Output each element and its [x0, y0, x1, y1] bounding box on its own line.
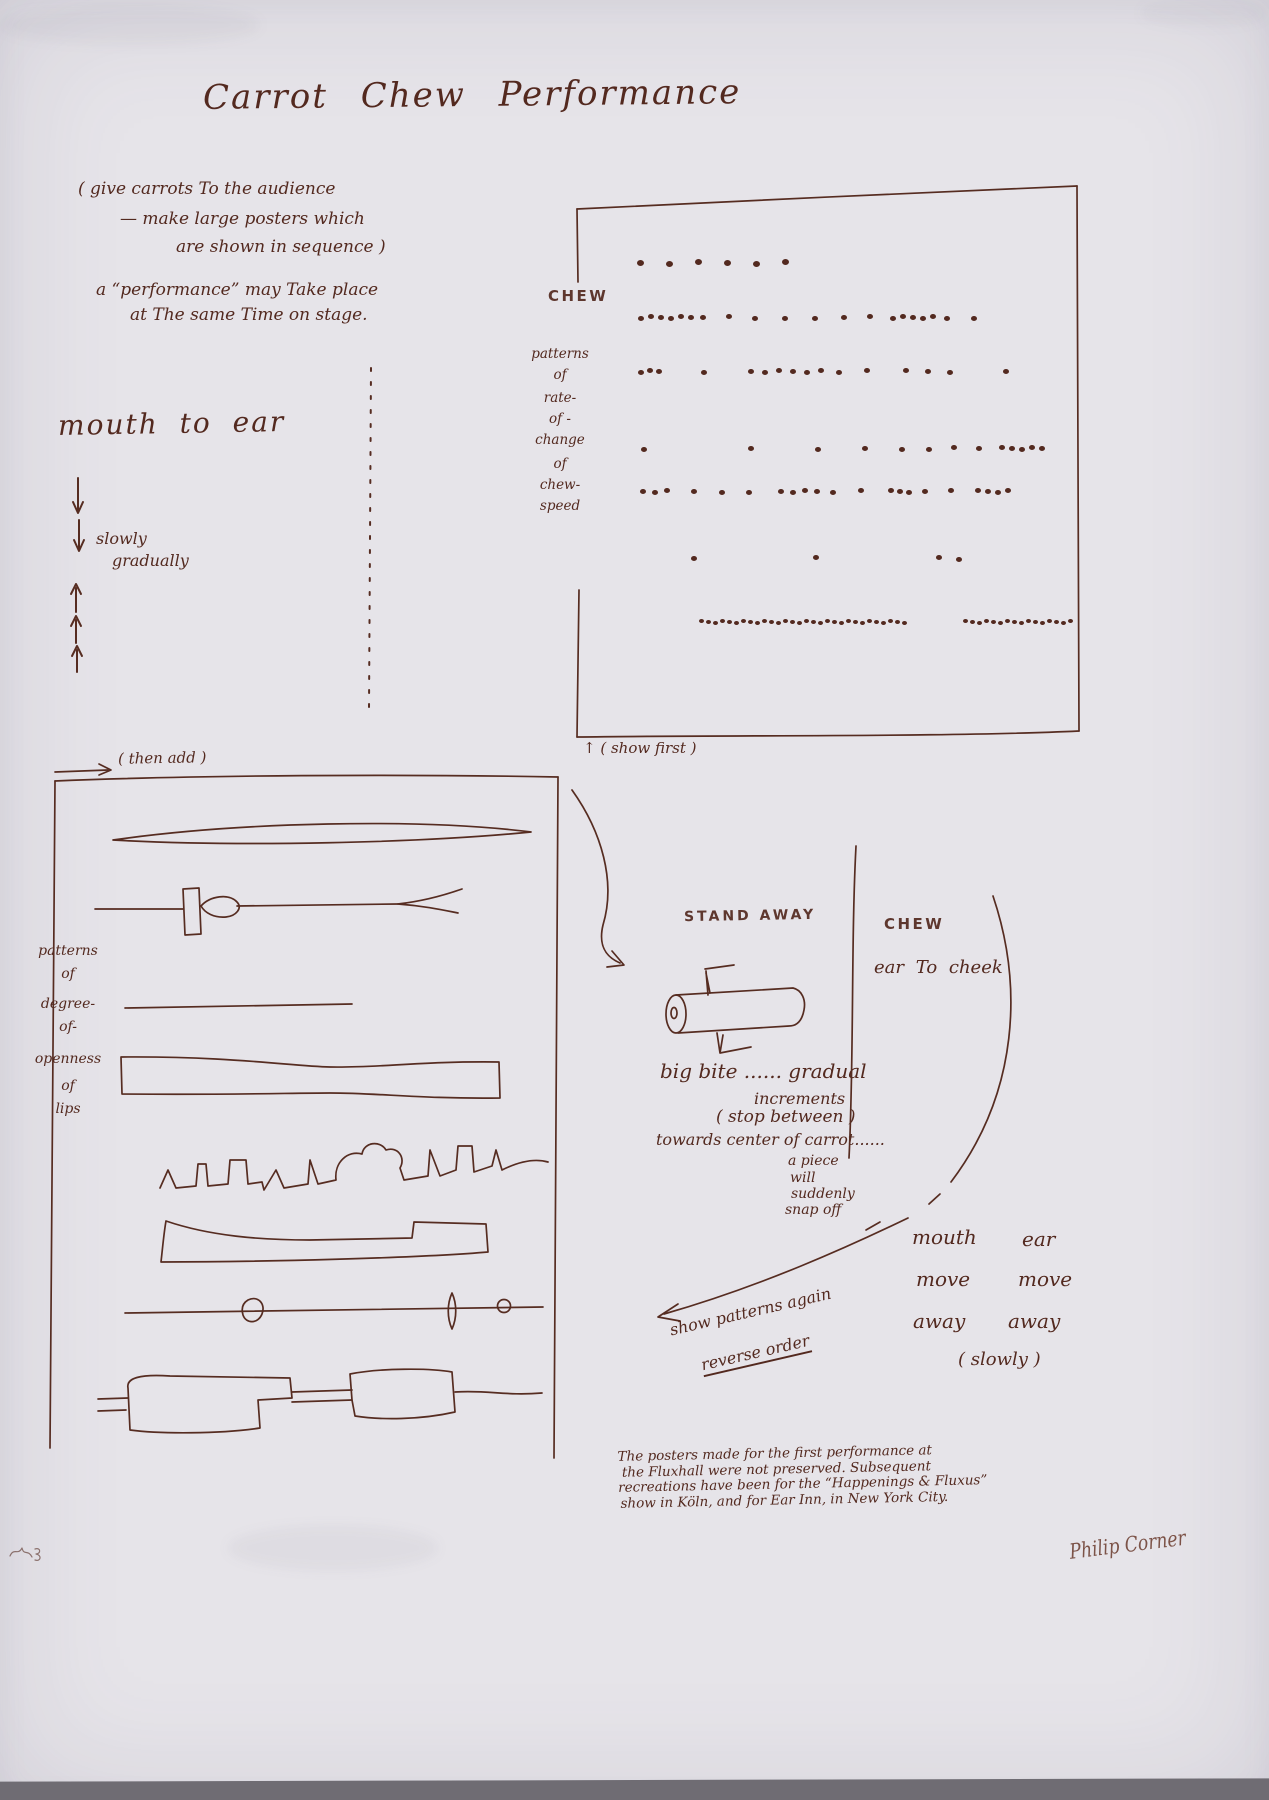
a-piece-line: a piece — [788, 1153, 839, 1169]
lip-pattern-8 — [98, 1369, 542, 1433]
chew-dot — [888, 488, 894, 493]
ghost-smudge — [228, 1526, 438, 1570]
chew-dot — [971, 316, 977, 321]
chew-dot — [648, 314, 654, 319]
curved-arrow-to-carrot — [572, 790, 624, 967]
show-first-label: ↑ ( show first ) — [583, 740, 696, 757]
chew-dot — [867, 619, 872, 623]
stand-away-label: STAND AWAY — [684, 907, 817, 925]
score-box-outline — [577, 186, 1079, 737]
show-patterns-again-label: show patterns again — [668, 1285, 833, 1340]
ending-move-2: move — [1018, 1268, 1072, 1291]
lip-pattern-5 — [160, 1144, 548, 1190]
chew-dot — [746, 490, 752, 495]
chew-dot — [899, 447, 905, 452]
chew-dot — [790, 490, 796, 495]
lip-pattern-2 — [95, 888, 462, 935]
then-add-label: ( then add ) — [118, 749, 207, 768]
chew-dot — [741, 619, 746, 623]
chew-dot — [804, 619, 809, 623]
lips-box-outline — [50, 775, 558, 1458]
lip-pattern-6 — [161, 1221, 488, 1262]
chew-dot — [895, 620, 900, 624]
ending-mouth: mouth — [912, 1226, 977, 1249]
chew-dot — [1019, 447, 1025, 452]
big-bite-line: big bite ...... gradual — [660, 1060, 867, 1083]
chew-dot — [818, 621, 823, 625]
slowly-label: slowly — [96, 530, 147, 548]
chew-dot — [903, 368, 909, 373]
chew-dot — [1039, 446, 1045, 451]
chew-dot — [762, 619, 767, 623]
reverse-order-label: reverse order — [699, 1332, 811, 1375]
chew-dot — [812, 316, 818, 321]
chew-dot — [797, 621, 802, 625]
chew-dot — [926, 447, 932, 452]
bottom-bite-mark — [717, 1033, 751, 1053]
chew-dot — [948, 488, 954, 493]
chew-dot — [860, 621, 865, 625]
gradually-label: gradually — [112, 552, 189, 570]
openness-of-lips-label: patterns of degree- of- openness of lips — [18, 940, 118, 1121]
intro-line-2: — make large posters which — [120, 210, 365, 230]
chew-dot — [963, 619, 968, 623]
chew-dot — [790, 620, 795, 624]
chew-dot — [906, 490, 912, 495]
ghost-smudge — [0, 6, 260, 44]
chew-dot — [804, 370, 810, 375]
chew-dot — [944, 316, 950, 321]
chew-dot — [1047, 619, 1052, 623]
lip-pattern-3 — [125, 1004, 352, 1008]
chew-dot — [930, 314, 936, 319]
chew-dot — [890, 316, 896, 321]
chew-dot — [902, 621, 907, 625]
chew-dot — [1019, 621, 1024, 625]
chew-dot — [720, 619, 725, 623]
intro-line-5: at The same Time on stage. — [130, 306, 368, 326]
lip-pattern-4 — [121, 1057, 500, 1098]
chew-dot — [1003, 369, 1009, 374]
chew-dot — [668, 316, 674, 321]
towards-center-line: towards center of carrot...... — [656, 1131, 885, 1149]
ending-ear: ear — [1022, 1228, 1055, 1251]
chew-dot — [706, 620, 711, 624]
chew-dot — [1040, 621, 1045, 625]
page-title: Carrot Chew Performance — [203, 73, 742, 118]
chew-dot — [700, 315, 706, 320]
chew-dot — [782, 316, 788, 321]
ending-away-2: away — [1008, 1310, 1060, 1333]
chew-dot — [647, 368, 653, 373]
chew-dot — [813, 555, 819, 560]
will-line: will — [790, 1170, 815, 1186]
chew-dot — [853, 620, 858, 624]
chew-dot — [936, 555, 942, 560]
dotted-divider-line — [369, 368, 371, 708]
chew-dot — [802, 488, 808, 493]
chew-dot — [727, 620, 732, 624]
chew-dot — [1005, 488, 1011, 493]
chew-dot — [888, 619, 893, 623]
chew-dot — [1068, 619, 1073, 623]
carrot-drawing — [666, 965, 805, 1053]
ending-away-1: away — [913, 1310, 965, 1333]
chew-dot — [1012, 620, 1017, 624]
chew-dot — [790, 369, 796, 374]
chew-dot — [830, 490, 836, 495]
chew-dot — [910, 315, 916, 320]
chew-dot — [782, 259, 789, 265]
chew-dot — [975, 488, 981, 493]
chew-dot — [984, 619, 989, 623]
ghost-smudge — [1140, 0, 1268, 26]
chew-dot — [726, 314, 732, 319]
chew-dot — [778, 489, 784, 494]
chew-dot — [748, 620, 753, 624]
chew-dot — [699, 619, 704, 623]
chew-dot — [841, 315, 847, 320]
lip-pattern-1 — [113, 824, 531, 844]
then-add-arrow — [55, 764, 111, 775]
intro-line-1: ( give carrots To the audience — [78, 180, 335, 200]
chew-dot — [862, 446, 868, 451]
chew-dot — [815, 447, 821, 452]
chew-dot — [691, 489, 697, 494]
snap-off-line: snap off — [785, 1202, 841, 1218]
chew-dot — [755, 621, 760, 625]
chew-dot — [748, 369, 754, 374]
chew-dot — [638, 316, 644, 321]
chew-dot — [991, 620, 996, 624]
chew-dot — [977, 621, 982, 625]
chew-dot — [1061, 621, 1066, 625]
chew-dot — [836, 370, 842, 375]
chew-dot — [995, 490, 1001, 495]
chew-dot — [825, 619, 830, 623]
chew-dot — [1009, 446, 1015, 451]
ear-to-cheek-label: ear To cheek — [874, 958, 1003, 979]
stop-between-line: ( stop between ) — [716, 1108, 856, 1128]
chew-dot — [998, 621, 1003, 625]
chew-dot — [734, 621, 739, 625]
chew-dot — [762, 370, 768, 375]
suddenly-line: suddenly — [791, 1186, 855, 1202]
chew-dot — [814, 489, 820, 494]
chew-dot — [769, 620, 774, 624]
chew-dot — [656, 369, 662, 374]
chew-dot — [999, 445, 1005, 450]
chew-dot — [701, 370, 707, 375]
chew-dot — [713, 621, 718, 625]
chew-dot — [658, 315, 664, 320]
chew-dot — [858, 488, 864, 493]
chew-dot — [776, 368, 782, 373]
top-bite-mark — [705, 965, 734, 995]
chew-dot — [719, 490, 725, 495]
chew-dot — [976, 446, 982, 451]
chew-dot — [818, 368, 824, 373]
artist-signature: Philip Corner — [1068, 1526, 1187, 1564]
chew-dot — [688, 315, 694, 320]
chew-dot — [900, 314, 906, 319]
chew-dot — [881, 621, 886, 625]
up-arrows — [71, 584, 82, 672]
chew-dot — [678, 314, 684, 319]
footnote: The posters made for the first performan… — [617, 1442, 987, 1512]
chew-dot — [640, 489, 646, 494]
chew-dot — [776, 621, 781, 625]
chew-dot — [1005, 619, 1010, 623]
lip-pattern-7 — [125, 1293, 543, 1329]
chew-dot — [864, 368, 870, 373]
chew-dot — [666, 261, 673, 267]
chew-dot — [752, 316, 758, 321]
ending-move-1: move — [916, 1268, 970, 1291]
chew-dot — [1026, 619, 1031, 623]
chew-dot — [951, 445, 957, 450]
chew-dot — [641, 447, 647, 452]
chew-dot — [1029, 445, 1035, 450]
chew-dot — [846, 619, 851, 623]
paper-bottom-edge — [0, 1778, 1269, 1800]
mouth-to-ear-heading: mouth to ear — [58, 406, 286, 442]
chew-dot — [753, 261, 760, 267]
intro-line-3: are shown in sequence ) — [176, 238, 386, 258]
chew-dot — [832, 620, 837, 624]
chew-label-2: CHEW — [884, 916, 944, 933]
ending-slowly: ( slowly ) — [958, 1350, 1041, 1371]
corner-mark — [10, 1548, 40, 1560]
chew-dot — [811, 620, 816, 624]
chew-dot — [748, 446, 754, 451]
chew-dot — [664, 488, 670, 493]
chew-dot — [970, 620, 975, 624]
chew-dot — [637, 260, 644, 266]
chew-dot — [1054, 620, 1059, 624]
chew-dot — [652, 490, 658, 495]
down-arrows — [73, 478, 84, 551]
score-page: Carrot Chew Performance ( give carrots T… — [0, 0, 1269, 1800]
chew-label: CHEW — [548, 288, 608, 305]
chew-dot — [839, 621, 844, 625]
ear-to-cheek-curve — [866, 896, 1011, 1230]
chew-dot — [947, 370, 953, 375]
increments-line: increments — [754, 1090, 845, 1108]
chew-dot — [956, 557, 962, 562]
chew-dot — [783, 619, 788, 623]
chew-dot — [985, 489, 991, 494]
chew-dot — [695, 259, 702, 265]
chew-dot — [920, 316, 926, 321]
chew-dot — [925, 369, 931, 374]
chew-dot — [724, 260, 731, 266]
chew-dot — [691, 556, 697, 561]
chew-dot — [874, 620, 879, 624]
rate-of-change-label: patterns of rate- of - change of chew- s… — [512, 344, 608, 517]
chew-dot — [897, 489, 903, 494]
chew-dot — [1033, 620, 1038, 624]
chew-dot — [867, 314, 873, 319]
intro-line-4: a “performance” may Take place — [96, 281, 378, 301]
chew-dot — [922, 489, 928, 494]
chew-dot — [638, 370, 644, 375]
